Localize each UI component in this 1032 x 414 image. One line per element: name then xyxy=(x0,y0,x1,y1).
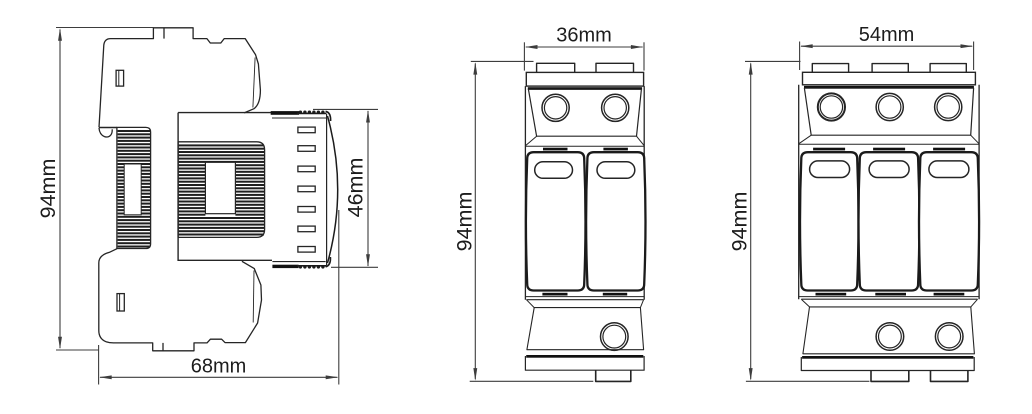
svg-text:94mm: 94mm xyxy=(728,192,752,252)
svg-text:46mm: 46mm xyxy=(343,158,367,218)
svg-text:94mm: 94mm xyxy=(36,159,60,219)
svg-text:36mm: 36mm xyxy=(556,25,612,47)
svg-text:68mm: 68mm xyxy=(191,355,247,377)
svg-text:94mm: 94mm xyxy=(452,192,476,252)
svg-text:54mm: 54mm xyxy=(859,24,915,46)
